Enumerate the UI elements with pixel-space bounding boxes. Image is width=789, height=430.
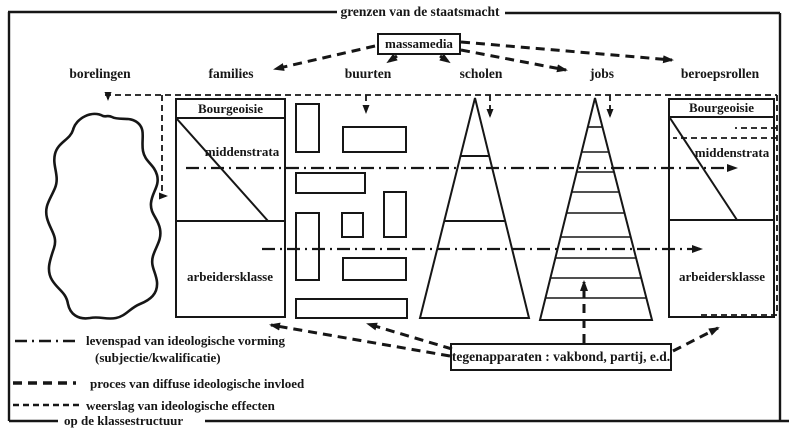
buurten-blocks <box>296 104 407 318</box>
column-label-jobs: jobs <box>590 67 614 81</box>
diagram-title: grenzen van de staatsmacht <box>340 5 499 19</box>
families-bourgeoisie-label: Bourgeoisie <box>198 101 263 117</box>
legend-line-samples <box>13 341 82 405</box>
beroepsrollen-class-rect <box>668 98 775 318</box>
legend-weerslag-label2: op de klassestructuur <box>60 414 187 427</box>
tegenapparaten-label: tegenapparaten : vakbond, partij, e.d. <box>452 349 670 365</box>
column-label-scholen: scholen <box>460 67 503 81</box>
legend-levenspad-label: levenspad van ideologische vorming <box>86 334 285 347</box>
tegenapparaten-box: tegenapparaten : vakbond, partij, e.d. <box>450 343 672 371</box>
families-bourgeoisie-box: Bourgeoisie <box>175 98 286 119</box>
jobs-triangle-strata <box>545 127 646 298</box>
legend-weerslag-label: weerslag van ideologische effecten <box>86 399 275 412</box>
column-label-buurten: buurten <box>345 67 392 81</box>
beroepsrollen-bourgeoisie-box: Bourgeoisie <box>668 98 775 118</box>
massamedia-box: massamedia <box>377 33 461 55</box>
families-arbeidersklasse-label: arbeidersklasse <box>187 270 273 283</box>
families-middenstrata-label: middenstrata <box>205 145 279 158</box>
beroepsrollen-arbeidersklasse-label: arbeidersklasse <box>679 270 765 283</box>
legend-levenspad-label2: (subjectie/kwalificatie) <box>95 351 221 364</box>
massamedia-label: massamedia <box>385 36 453 52</box>
scholen-triangle <box>420 98 529 318</box>
column-label-borelingen: borelingen <box>69 67 130 81</box>
families-class-rect <box>175 98 286 318</box>
jobs-triangle <box>540 98 652 320</box>
diagram-canvas: grenzen van de staatsmacht massamedia bo… <box>0 0 789 430</box>
legend-proces-label: proces van diffuse ideologische invloed <box>90 377 304 390</box>
column-label-beroepsrollen: beroepsrollen <box>681 67 759 81</box>
beroepsrollen-bourgeoisie-label: Bourgeoisie <box>689 100 754 116</box>
borelingen-blob <box>46 114 160 319</box>
column-label-families: families <box>209 67 254 81</box>
beroepsrollen-middenstrata-label: middenstrata <box>695 146 769 159</box>
